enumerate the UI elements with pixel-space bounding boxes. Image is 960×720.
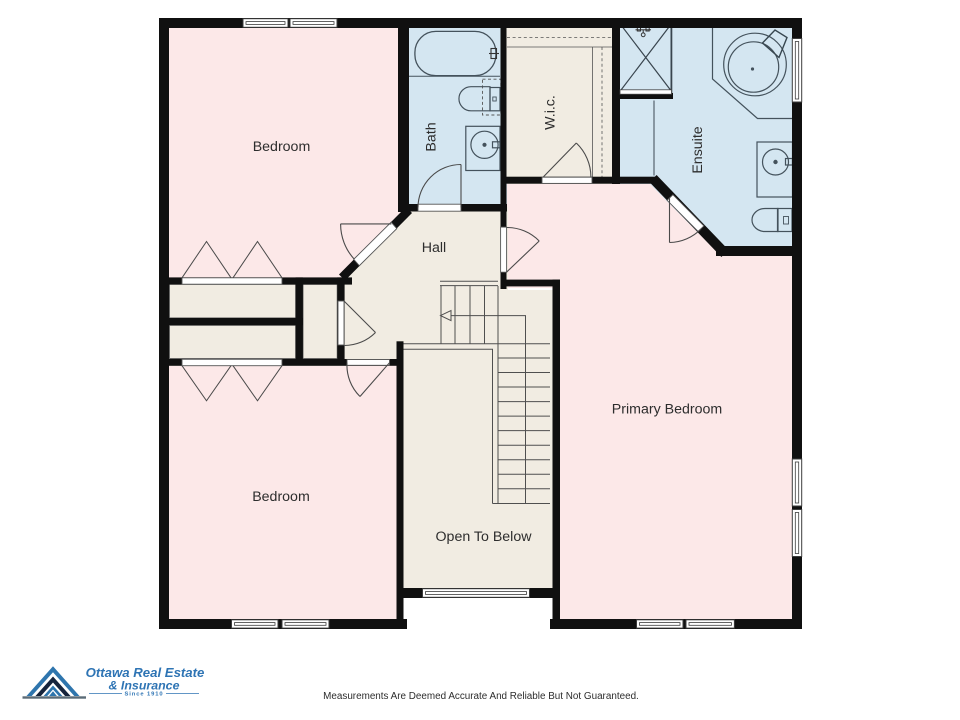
svg-text:W.i.c.: W.i.c. (543, 95, 559, 130)
svg-text:Measurements Are Deemed Accura: Measurements Are Deemed Accurate And Rel… (323, 691, 639, 702)
svg-text:Hall: Hall (422, 240, 446, 256)
svg-text:Bedroom: Bedroom (253, 139, 311, 155)
svg-text:Bath: Bath (424, 122, 440, 151)
svg-text:Open To Below: Open To Below (436, 529, 533, 545)
svg-text:& Insurance: & Insurance (109, 679, 180, 693)
svg-text:Bedroom: Bedroom (252, 489, 310, 505)
svg-text:Since 1910: Since 1910 (125, 692, 164, 698)
svg-text:Ensuite: Ensuite (690, 126, 706, 173)
svg-text:Primary Bedroom: Primary Bedroom (612, 402, 722, 418)
